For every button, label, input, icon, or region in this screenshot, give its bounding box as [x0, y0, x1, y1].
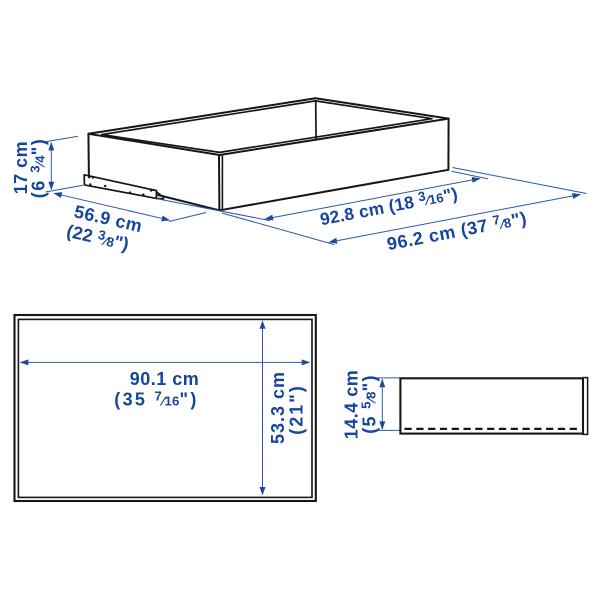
svg-text:(6 3⁄4"): (6 3⁄4")	[28, 138, 49, 199]
svg-text:53.3 cm: 53.3 cm	[268, 371, 288, 444]
svg-text:96.2 cm (37 7⁄8"): 96.2 cm (37 7⁄8")	[385, 207, 528, 254]
svg-text:(35 7⁄16"): (35 7⁄16")	[114, 389, 198, 410]
svg-text:(21"): (21")	[287, 384, 307, 435]
svg-text:(5 5⁄8"): (5 5⁄8")	[359, 374, 380, 434]
svg-text:90.1 cm: 90.1 cm	[130, 369, 200, 389]
